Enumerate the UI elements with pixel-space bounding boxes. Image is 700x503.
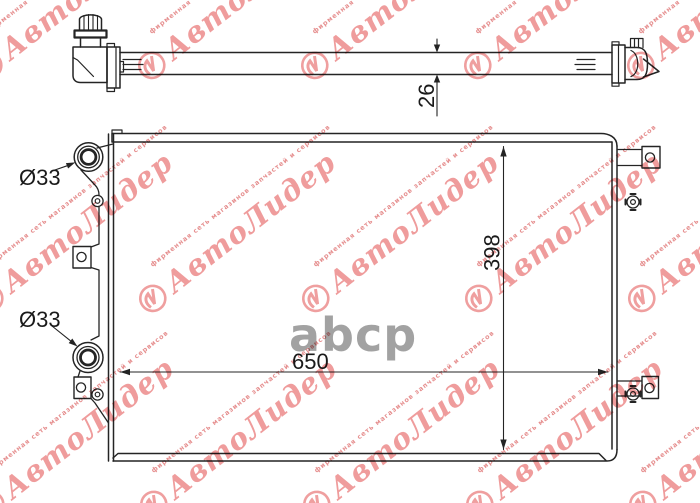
front-view-outline bbox=[109, 130, 618, 461]
top-view-core-bar bbox=[120, 53, 612, 75]
lower-outlet-port bbox=[73, 343, 103, 373]
dimension-650 bbox=[120, 369, 608, 375]
thickness-dim-label: 26 bbox=[414, 84, 439, 108]
top-view-right-fitting bbox=[612, 39, 659, 87]
left-brackets bbox=[73, 247, 91, 399]
drawing-page: 26 650 398 Ø33 Ø33 abcp фирменная сеть м… bbox=[0, 0, 700, 503]
upper-port-dim-label: Ø33 bbox=[19, 165, 61, 190]
abcp-logo: abcp bbox=[289, 312, 417, 358]
lower-port-dim-label: Ø33 bbox=[19, 307, 61, 332]
radiator-technical-drawing: 26 650 398 Ø33 Ø33 bbox=[0, 0, 700, 503]
height-dim-label: 398 bbox=[480, 234, 505, 271]
right-brackets bbox=[617, 147, 660, 399]
upper-inlet-port bbox=[74, 143, 103, 172]
top-view-left-fitting bbox=[73, 15, 124, 92]
dimension-398 bbox=[500, 147, 506, 450]
right-clips bbox=[626, 194, 641, 402]
